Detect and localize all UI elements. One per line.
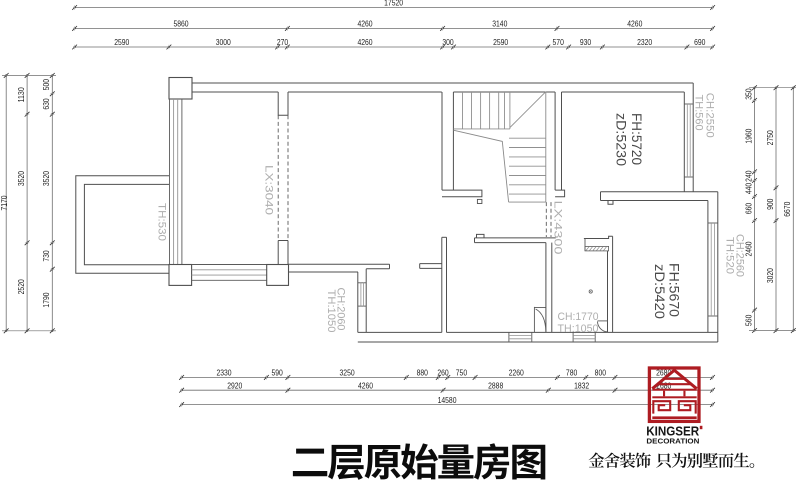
svg-text:DECORATION: DECORATION <box>646 437 699 446</box>
svg-text:660: 660 <box>743 203 753 215</box>
svg-text:930: 930 <box>580 37 592 47</box>
svg-text:LX:3040: LX:3040 <box>263 165 275 215</box>
svg-text:4260: 4260 <box>357 19 372 29</box>
svg-text:2330: 2330 <box>216 368 231 378</box>
svg-text:630: 630 <box>41 98 51 110</box>
svg-text:2260: 2260 <box>509 368 524 378</box>
svg-text:500: 500 <box>41 79 51 91</box>
svg-text:LX:4300: LX:4300 <box>552 201 564 255</box>
svg-text:350: 350 <box>743 88 753 100</box>
svg-text:240: 240 <box>743 170 753 182</box>
svg-text:TH:1050: TH:1050 <box>325 290 337 333</box>
svg-text:5860: 5860 <box>173 19 188 29</box>
svg-text:570: 570 <box>553 37 565 47</box>
svg-text:270: 270 <box>277 37 289 47</box>
svg-text:900: 900 <box>765 198 775 210</box>
svg-text:17520: 17520 <box>384 0 403 8</box>
svg-text:TH:560: TH:560 <box>693 95 705 131</box>
svg-text:4260: 4260 <box>627 19 642 29</box>
svg-text:1130: 1130 <box>16 87 26 102</box>
svg-text:880: 880 <box>417 368 429 378</box>
svg-text:7170: 7170 <box>0 195 9 210</box>
svg-text:1790: 1790 <box>41 292 51 307</box>
svg-text:2320: 2320 <box>637 37 652 47</box>
svg-text:zD:5230: zD:5230 <box>614 113 630 166</box>
svg-text:3520: 3520 <box>41 171 51 186</box>
svg-text:2520: 2520 <box>16 279 26 294</box>
svg-text:2590: 2590 <box>114 37 129 47</box>
svg-text:TH:530: TH:530 <box>156 203 168 241</box>
svg-text:2590: 2590 <box>493 37 508 47</box>
svg-text:6670: 6670 <box>782 201 792 216</box>
svg-text:1960: 1960 <box>743 128 753 143</box>
svg-text:FH:5720: FH:5720 <box>629 113 645 165</box>
svg-text:4260: 4260 <box>358 380 373 390</box>
svg-text:800: 800 <box>595 368 607 378</box>
svg-text:TH:1050: TH:1050 <box>558 323 599 335</box>
svg-text:440: 440 <box>743 183 753 195</box>
svg-text:260: 260 <box>437 368 449 378</box>
svg-text:3140: 3140 <box>492 19 507 29</box>
svg-text:14580: 14580 <box>438 395 457 405</box>
svg-text:2888: 2888 <box>488 380 503 390</box>
svg-text:TH:520: TH:520 <box>724 237 736 274</box>
svg-text:780: 780 <box>566 368 578 378</box>
svg-text:3520: 3520 <box>16 171 26 186</box>
svg-text:3020: 3020 <box>765 268 775 283</box>
svg-text:2920: 2920 <box>227 380 242 390</box>
svg-text:CH:1770: CH:1770 <box>558 311 599 323</box>
svg-text:2750: 2750 <box>765 130 775 145</box>
svg-text:zD:5420: zD:5420 <box>652 264 668 319</box>
svg-text:590: 590 <box>271 368 283 378</box>
svg-text:4260: 4260 <box>357 37 372 47</box>
svg-text:730: 730 <box>41 250 51 262</box>
svg-text:3000: 3000 <box>216 37 231 47</box>
svg-text:3250: 3250 <box>340 368 355 378</box>
svg-text:690: 690 <box>694 37 706 47</box>
svg-text:560: 560 <box>743 314 753 326</box>
svg-text:300: 300 <box>442 37 454 47</box>
svg-text:1832: 1832 <box>574 380 589 390</box>
svg-text:750: 750 <box>456 368 468 378</box>
